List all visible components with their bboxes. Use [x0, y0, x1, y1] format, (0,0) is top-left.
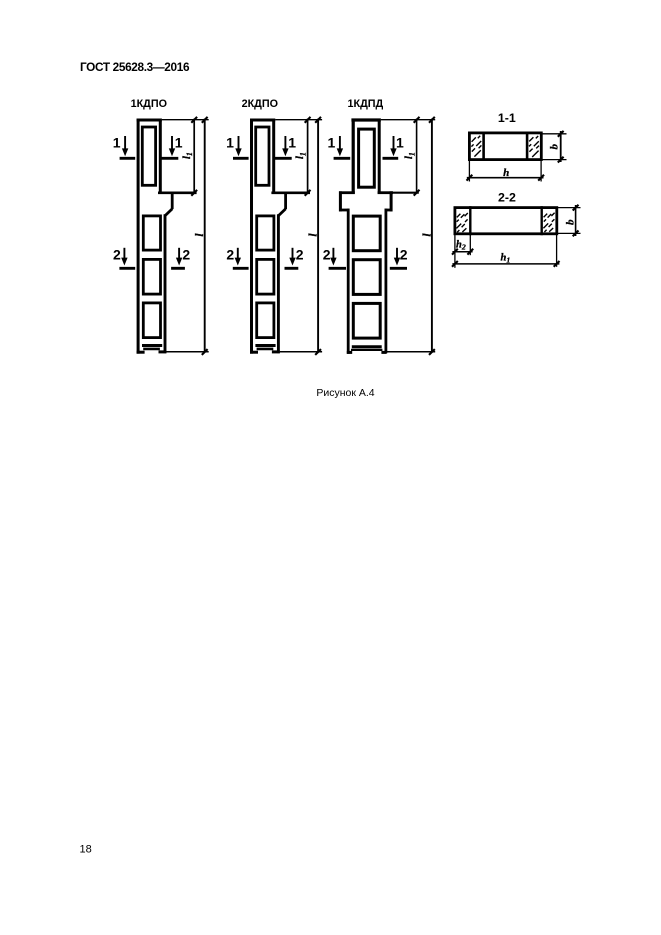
- svg-text:1: 1: [113, 134, 121, 150]
- svg-text:1КДПО: 1КДПО: [131, 98, 167, 110]
- svg-text:2: 2: [296, 246, 304, 262]
- svg-text:Рисунок А.4: Рисунок А.4: [316, 387, 374, 399]
- svg-text:2КДПО: 2КДПО: [242, 98, 278, 110]
- svg-text:1: 1: [396, 134, 404, 150]
- svg-text:2-2: 2-2: [498, 190, 516, 204]
- svg-text:ГОСТ 25628.3—2016: ГОСТ 25628.3—2016: [80, 60, 190, 74]
- svg-text:1: 1: [175, 134, 183, 150]
- svg-text:b: b: [564, 219, 576, 225]
- svg-text:2: 2: [323, 246, 331, 262]
- svg-text:1: 1: [288, 134, 296, 150]
- svg-text:2: 2: [400, 246, 408, 262]
- svg-text:1КДПД: 1КДПД: [348, 98, 384, 110]
- svg-text:b: b: [549, 144, 561, 150]
- svg-text:h: h: [503, 167, 509, 179]
- svg-text:18: 18: [80, 844, 92, 856]
- svg-text:1: 1: [328, 134, 336, 150]
- svg-text:2: 2: [182, 246, 190, 262]
- svg-text:2: 2: [226, 246, 234, 262]
- svg-text:1: 1: [226, 134, 234, 150]
- svg-text:1-1: 1-1: [498, 111, 516, 125]
- svg-text:2: 2: [113, 246, 121, 262]
